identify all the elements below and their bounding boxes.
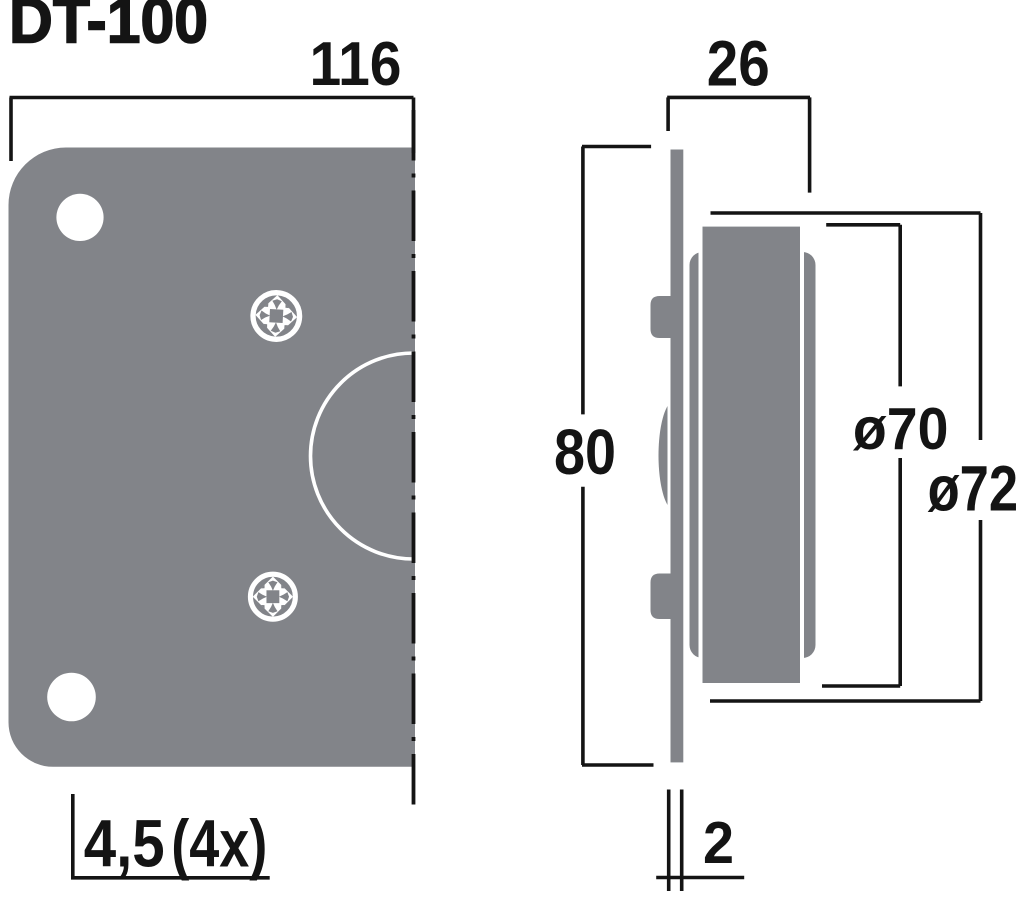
svg-text:116: 116: [310, 30, 402, 99]
svg-text:2: 2: [703, 810, 734, 876]
svg-text:ø72: ø72: [928, 453, 1019, 525]
svg-text:(4x): (4x): [171, 807, 267, 882]
svg-text:DT-100: DT-100: [9, 0, 208, 57]
svg-text:80: 80: [554, 416, 616, 488]
svg-text:4,5: 4,5: [84, 807, 165, 882]
svg-text:26: 26: [707, 28, 770, 100]
